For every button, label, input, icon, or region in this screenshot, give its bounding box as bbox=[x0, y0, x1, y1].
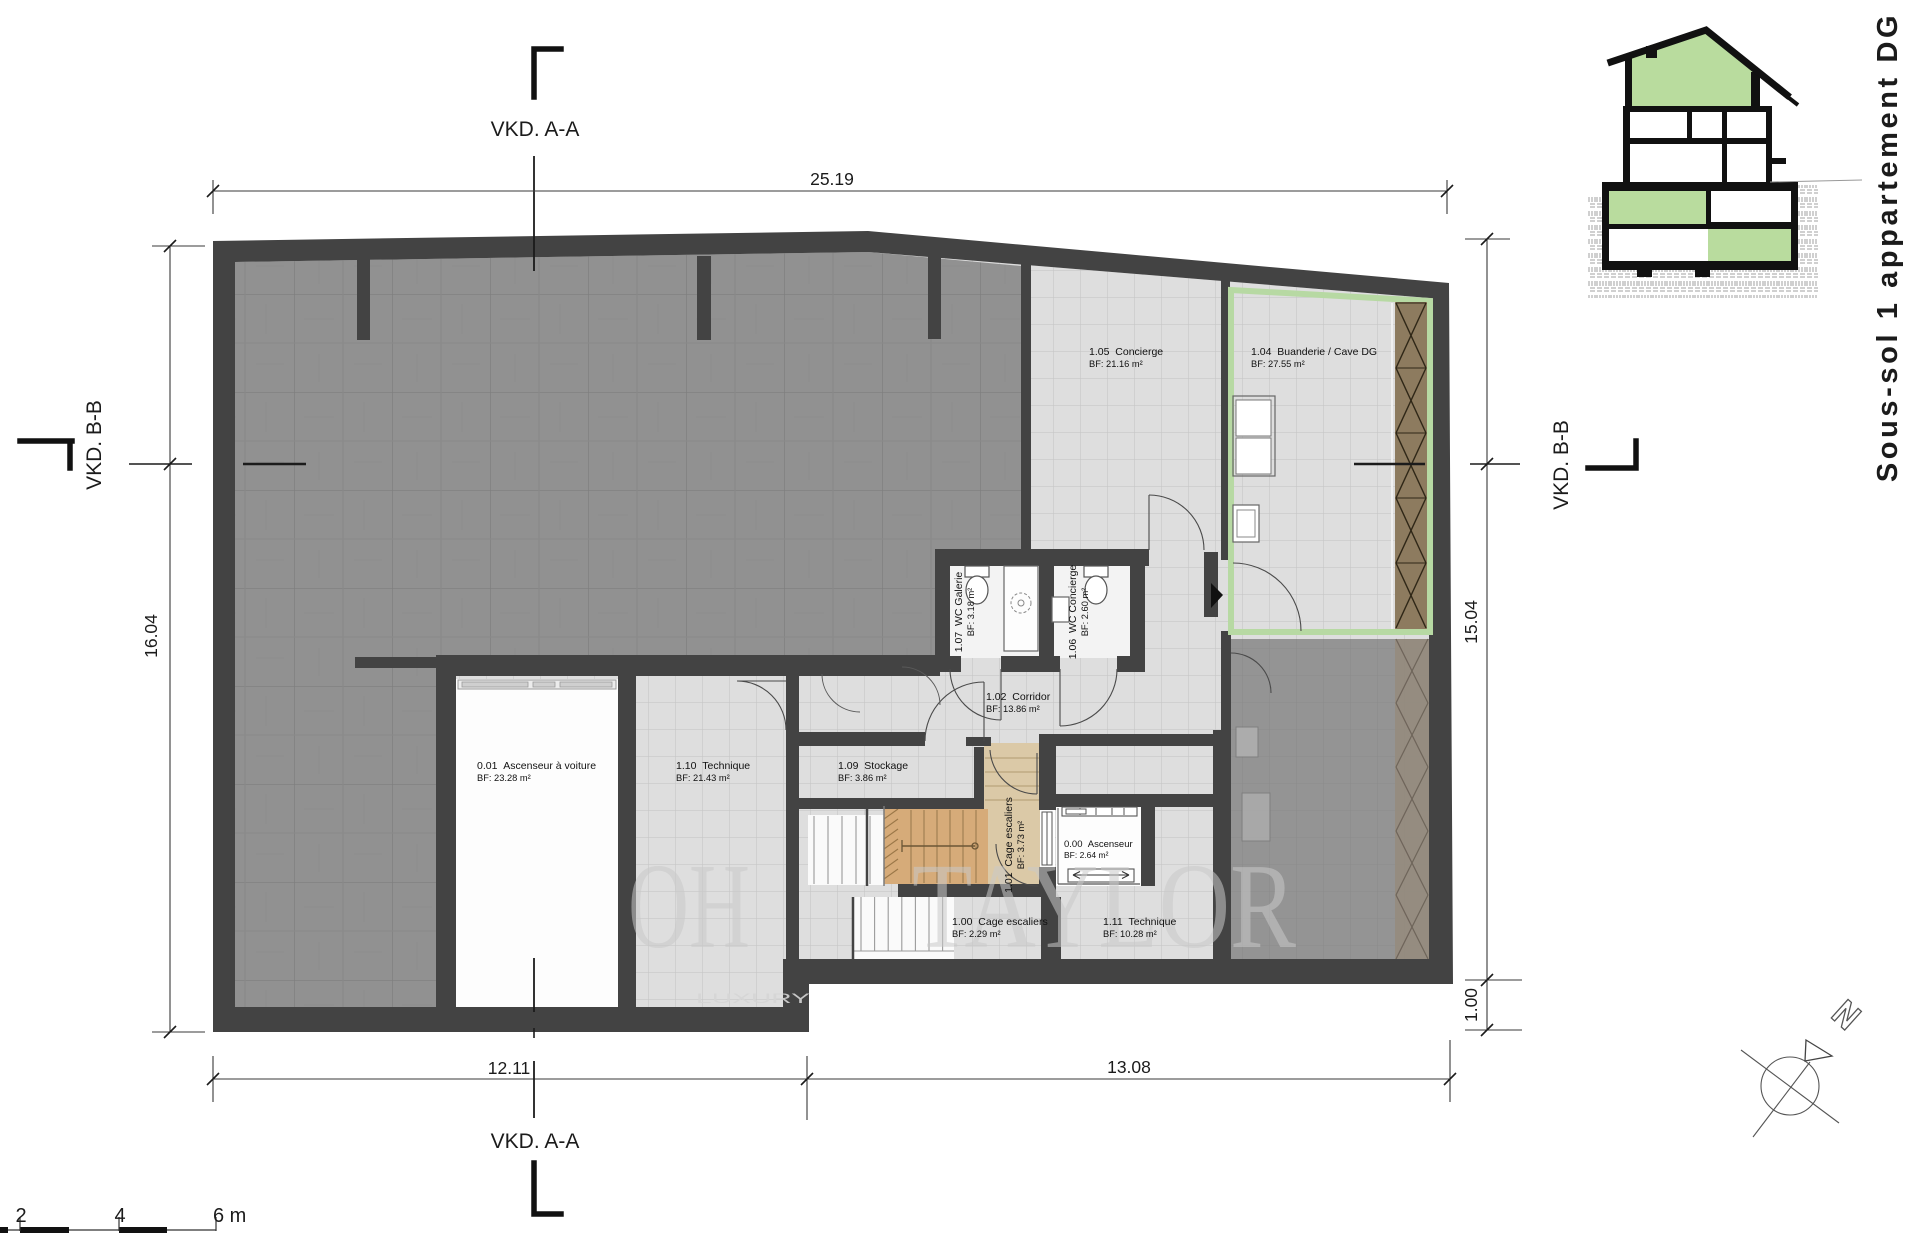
svg-text:BF: 3.18 m²: BF: 3.18 m² bbox=[966, 588, 976, 637]
svg-text:1.11 Technique: 1.11 Technique bbox=[1103, 916, 1177, 928]
svg-text:1.07 WC Galerie: 1.07 WC Galerie bbox=[953, 572, 965, 653]
svg-text:Sous-sol 1 appartement DG: Sous-sol 1 appartement DG bbox=[1872, 12, 1904, 482]
svg-text:13.08: 13.08 bbox=[1107, 1057, 1151, 1077]
svg-text:VKD. B-B: VKD. B-B bbox=[83, 400, 106, 490]
svg-text:1.04 Buanderie / Cave DG: 1.04 Buanderie / Cave DG bbox=[1251, 346, 1377, 358]
svg-text:4: 4 bbox=[114, 1205, 125, 1227]
svg-text:BF: 23.28 m²: BF: 23.28 m² bbox=[477, 773, 531, 783]
svg-text:0.00 Ascenseur: 0.00 Ascenseur bbox=[1064, 839, 1133, 850]
svg-text:VKD. A-A: VKD. A-A bbox=[491, 1130, 580, 1153]
svg-text:VKD. A-A: VKD. A-A bbox=[491, 118, 580, 141]
svg-text:16.04: 16.04 bbox=[141, 614, 161, 658]
svg-text:BF: 3.73 m²: BF: 3.73 m² bbox=[1016, 821, 1026, 870]
svg-text:BF: 21.16 m²: BF: 21.16 m² bbox=[1089, 359, 1143, 369]
svg-text:1.06 WC Concierge: 1.06 WC Concierge bbox=[1067, 565, 1079, 660]
svg-text:VKD. B-B: VKD. B-B bbox=[1550, 420, 1573, 510]
svg-text:LUXURY: LUXURY bbox=[696, 990, 811, 1006]
svg-text:BF: 2.29 m²: BF: 2.29 m² bbox=[952, 929, 1001, 939]
svg-text:1.00 Cage escaliers: 1.00 Cage escaliers bbox=[952, 916, 1048, 928]
svg-text:25.19: 25.19 bbox=[810, 169, 854, 189]
svg-text:BF: 2.64 m²: BF: 2.64 m² bbox=[1064, 850, 1109, 860]
svg-text:1.09 Stockage: 1.09 Stockage bbox=[838, 760, 908, 772]
svg-text:1.01 Cage escaliers: 1.01 Cage escaliers bbox=[1003, 797, 1015, 893]
svg-text:BF: 10.28 m²: BF: 10.28 m² bbox=[1103, 929, 1157, 939]
svg-text:1.10 Technique: 1.10 Technique bbox=[676, 760, 750, 772]
svg-text:15.04: 15.04 bbox=[1461, 600, 1481, 644]
svg-text:BF: 3.86 m²: BF: 3.86 m² bbox=[838, 773, 887, 783]
svg-text:OH: OH bbox=[628, 839, 750, 974]
svg-text:BF: 2.60 m²: BF: 2.60 m² bbox=[1080, 588, 1090, 637]
svg-text:1.00: 1.00 bbox=[1461, 988, 1481, 1022]
svg-text:BF: 13.86 m²: BF: 13.86 m² bbox=[986, 704, 1040, 714]
svg-text:0.01 Ascenseur à voiture: 0.01 Ascenseur à voiture bbox=[477, 760, 596, 772]
svg-text:1.05 Concierge: 1.05 Concierge bbox=[1089, 346, 1163, 358]
svg-text:6 m: 6 m bbox=[213, 1205, 246, 1227]
svg-text:BF: 21.43 m²: BF: 21.43 m² bbox=[676, 773, 730, 783]
svg-text:12.11: 12.11 bbox=[488, 1058, 531, 1078]
svg-text:1.02 Corridor: 1.02 Corridor bbox=[986, 691, 1051, 703]
svg-text:2: 2 bbox=[15, 1205, 26, 1227]
svg-text:BF: 27.55 m²: BF: 27.55 m² bbox=[1251, 359, 1305, 369]
